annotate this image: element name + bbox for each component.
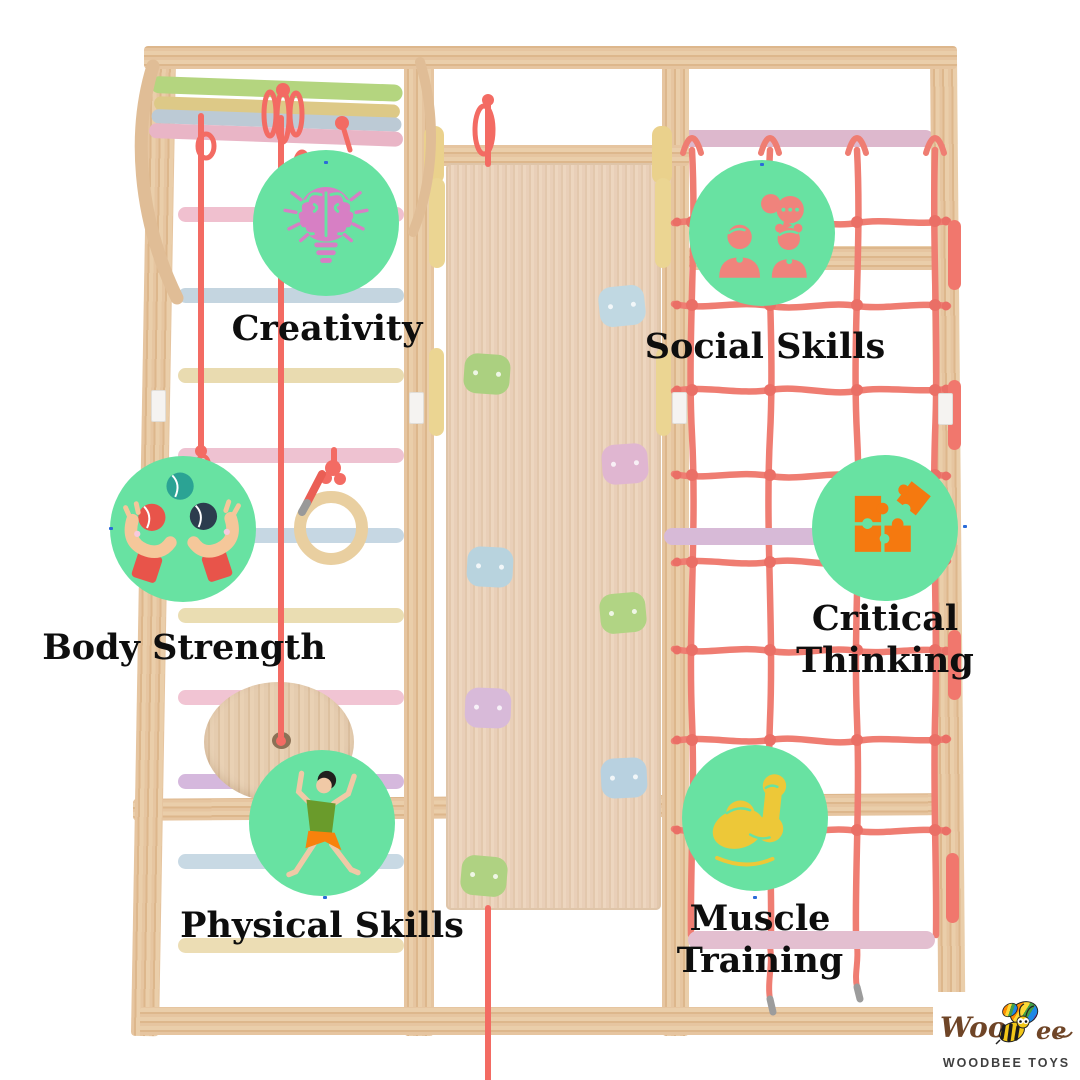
blue-speck <box>760 163 764 166</box>
flexed-bicep-icon <box>682 745 828 891</box>
feature-bubble-physical-skills <box>249 750 395 896</box>
net-rope-tips <box>770 987 860 1012</box>
blue-speck <box>323 896 327 899</box>
puzzle-pieces-icon <box>812 455 958 601</box>
blue-speck <box>324 161 328 164</box>
red-rung-tab <box>946 853 959 923</box>
blue-speck <box>753 896 757 899</box>
gym-ring <box>300 474 362 559</box>
feature-bubble-social-skills <box>689 160 835 306</box>
feature-bubble-creativity <box>253 150 399 296</box>
logo-script-start: Woo <box>940 1011 1007 1044</box>
feature-bubble-body-strength <box>110 456 256 602</box>
post-label-tag <box>409 392 424 424</box>
brand-logo-box: Woo ee WOODBEE TOYS <box>933 992 1080 1080</box>
feature-label-line: Critical <box>755 598 1015 640</box>
jumping-child-icon <box>249 750 395 896</box>
feature-label-critical-thinking: Critical Thinking <box>755 598 1015 682</box>
logo-script-end: ee <box>1036 1016 1067 1045</box>
lightbulb-brain-icon <box>253 150 399 296</box>
feature-bubble-muscle-training <box>682 745 828 891</box>
feature-label-creativity: Creativity <box>197 308 457 350</box>
feature-label-line: Thinking <box>755 640 1015 682</box>
juggling-hands-icon <box>110 456 256 602</box>
post-label-tag <box>151 390 166 422</box>
feature-bubble-critical-thinking <box>812 455 958 601</box>
woodbee-logo: Woo ee <box>940 997 1074 1053</box>
feature-label-physical-skills: Physical Skills <box>172 905 472 947</box>
feature-label-social-skills: Social Skills <box>625 326 905 368</box>
children-talking-icon <box>689 160 835 306</box>
feature-label-muscle-training: Muscle Training <box>610 898 910 982</box>
red-rung-tab <box>948 220 961 290</box>
blue-speck <box>109 527 113 530</box>
brand-caption: WOODBEE TOYS <box>933 1056 1080 1070</box>
post-label-tag <box>672 392 687 424</box>
feature-label-body-strength: Body Strength <box>34 627 334 669</box>
blue-speck <box>963 525 967 528</box>
post-label-tag <box>938 393 953 425</box>
infographic-canvas: Creativity Social Skills <box>0 0 1080 1080</box>
